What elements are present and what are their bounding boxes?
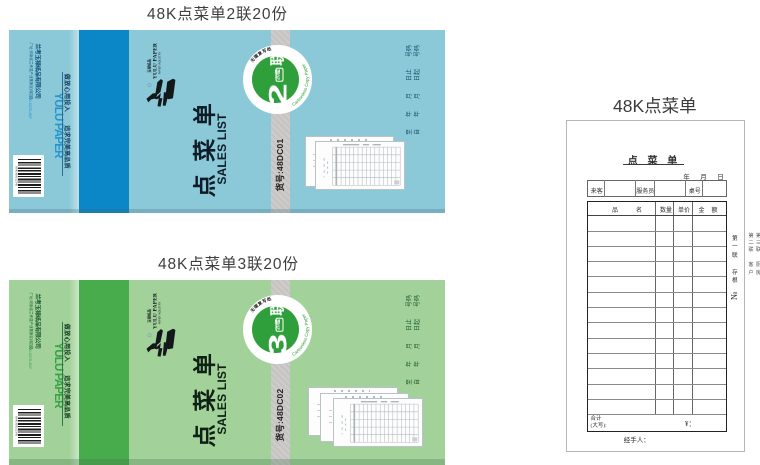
svg-text:Carbonless Copy Paper: Carbonless Copy Paper bbox=[291, 313, 309, 357]
svg-text:无碳复写纸: 无碳复写纸 bbox=[248, 45, 273, 65]
svg-text:Carbonless Copy Paper: Carbonless Copy Paper bbox=[291, 63, 309, 107]
svg-text:无碳复写纸: 无碳复写纸 bbox=[248, 295, 273, 315]
